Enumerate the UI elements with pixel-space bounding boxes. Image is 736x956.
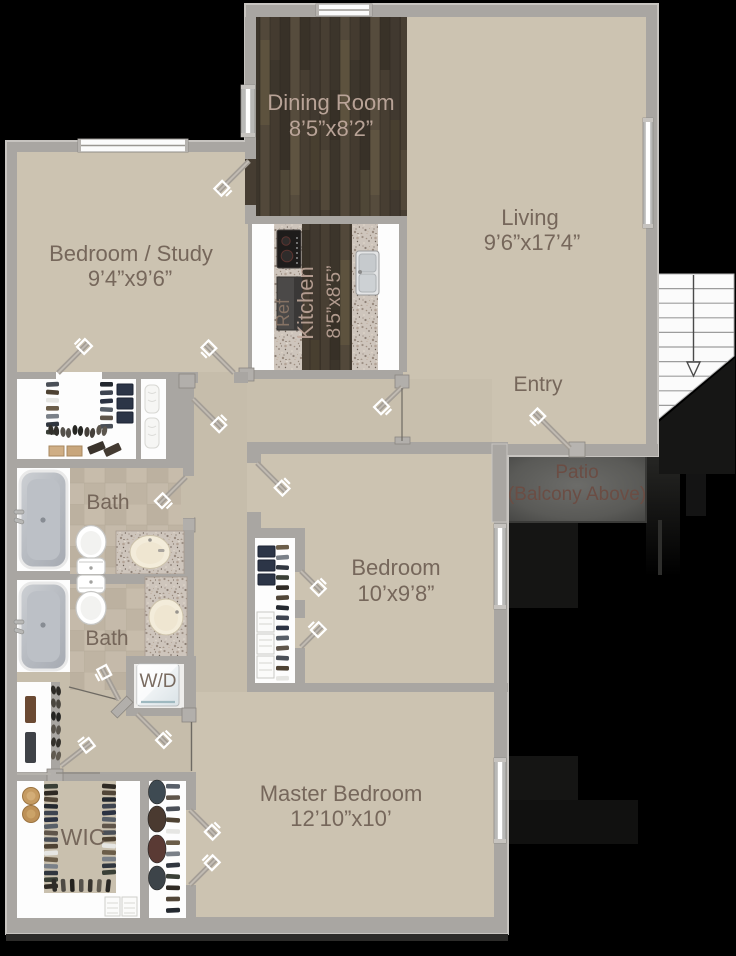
svg-text:Living: Living xyxy=(501,205,558,230)
svg-text:Dining Room: Dining Room xyxy=(267,90,394,115)
svg-text:Master Bedroom: Master Bedroom xyxy=(260,781,423,806)
svg-text:W/D: W/D xyxy=(140,671,177,692)
svg-text:Patio: Patio xyxy=(555,462,598,483)
svg-text:8’5”x8’5”: 8’5”x8’5” xyxy=(324,266,345,339)
svg-text:9’6”x17’4”: 9’6”x17’4” xyxy=(484,230,581,255)
svg-text:Bedroom / Study: Bedroom / Study xyxy=(49,241,213,266)
svg-text:WIC: WIC xyxy=(61,824,106,850)
svg-text:10’x9’8”: 10’x9’8” xyxy=(357,581,434,606)
svg-text:Entry: Entry xyxy=(513,373,563,396)
svg-text:Bath: Bath xyxy=(85,627,128,650)
svg-text:(Balcony Above): (Balcony Above) xyxy=(508,484,646,505)
svg-text:9’4”x9’6”: 9’4”x9’6” xyxy=(88,266,172,291)
svg-text:Bedroom: Bedroom xyxy=(351,555,440,580)
svg-text:Kitchen: Kitchen xyxy=(293,266,318,339)
svg-text:12’10”x10’: 12’10”x10’ xyxy=(290,806,392,831)
svg-text:Ref: Ref xyxy=(273,298,293,327)
svg-text:8’5”x8’2”: 8’5”x8’2” xyxy=(289,116,373,141)
svg-text:Bath: Bath xyxy=(86,491,129,514)
